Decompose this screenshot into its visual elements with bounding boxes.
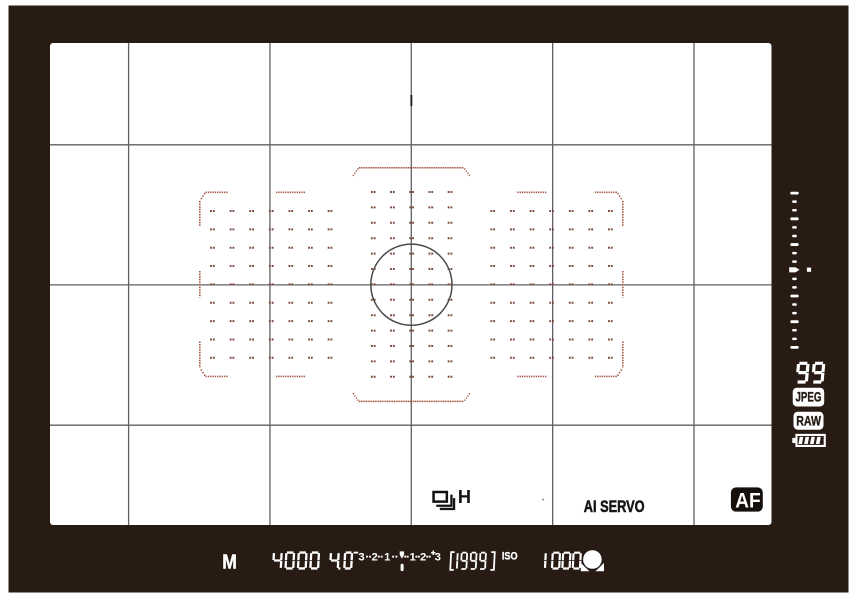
svg-text:AI SERVO: AI SERVO [584,497,645,516]
svg-text:ISO: ISO [502,551,518,563]
svg-text:2: 2 [371,552,377,564]
svg-text:1: 1 [384,552,390,564]
svg-text:AF: AF [735,490,761,513]
svg-text:M: M [222,552,237,574]
svg-text:3: 3 [435,552,441,564]
svg-text:3: 3 [358,552,364,564]
svg-text:H: H [458,487,471,507]
svg-text:RAW: RAW [796,413,822,428]
svg-text:JPEG: JPEG [796,390,822,405]
svg-text:1: 1 [410,552,416,564]
svg-text:2: 2 [420,552,426,564]
